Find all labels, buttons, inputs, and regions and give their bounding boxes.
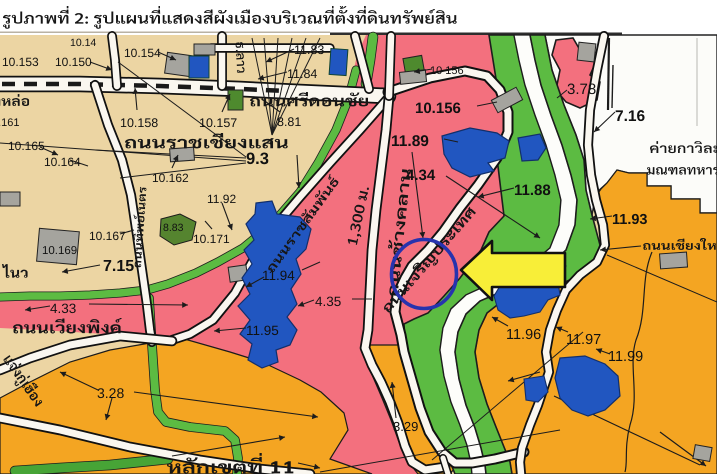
svg-text:11.99: 11.99 xyxy=(608,349,643,365)
svg-text:7.16: 7.16 xyxy=(615,108,646,125)
svg-text:8.83: 8.83 xyxy=(163,222,184,234)
svg-text:4.33: 4.33 xyxy=(50,301,76,316)
svg-text:10.164: 10.164 xyxy=(44,155,81,169)
svg-text:11.84: 11.84 xyxy=(287,67,317,81)
svg-text:11.96: 11.96 xyxy=(506,327,541,343)
svg-text:7.15: 7.15 xyxy=(103,258,134,275)
svg-text:10.157: 10.157 xyxy=(199,116,237,130)
svg-text:10.169: 10.169 xyxy=(42,245,77,257)
svg-text:10.171: 10.171 xyxy=(193,232,230,246)
svg-text:11.93: 11.93 xyxy=(612,212,648,228)
svg-text:3.29: 3.29 xyxy=(393,419,418,434)
svg-text:10.162: 10.162 xyxy=(152,171,189,185)
svg-text:11.94: 11.94 xyxy=(262,268,295,283)
svg-text:11.89: 11.89 xyxy=(391,133,429,150)
svg-text:4.34: 4.34 xyxy=(406,167,436,184)
svg-text:10.153: 10.153 xyxy=(2,55,39,69)
svg-text:10.165: 10.165 xyxy=(8,139,45,153)
svg-text:4.35: 4.35 xyxy=(315,294,341,309)
svg-text:11.97: 11.97 xyxy=(566,332,601,348)
svg-text:11.92: 11.92 xyxy=(207,192,236,206)
svg-text:8.81: 8.81 xyxy=(277,115,301,129)
svg-text:11.83: 11.83 xyxy=(294,43,324,57)
svg-text:10.156: 10.156 xyxy=(415,100,461,117)
svg-text:11.88: 11.88 xyxy=(514,182,551,199)
svg-text:3.78: 3.78 xyxy=(567,81,596,98)
svg-text:10.167: 10.167 xyxy=(89,229,126,243)
svg-text:3.28: 3.28 xyxy=(97,385,124,401)
svg-text:10 156: 10 156 xyxy=(430,65,464,77)
svg-text:10.14: 10.14 xyxy=(70,37,96,49)
svg-text:0.161: 0.161 xyxy=(0,117,20,129)
svg-text:10.158: 10.158 xyxy=(120,116,158,130)
svg-text:11.95: 11.95 xyxy=(246,323,279,338)
svg-text:10.150: 10.150 xyxy=(55,55,92,69)
svg-text:9.3: 9.3 xyxy=(246,150,269,168)
svg-text:10.154: 10.154 xyxy=(124,46,161,60)
